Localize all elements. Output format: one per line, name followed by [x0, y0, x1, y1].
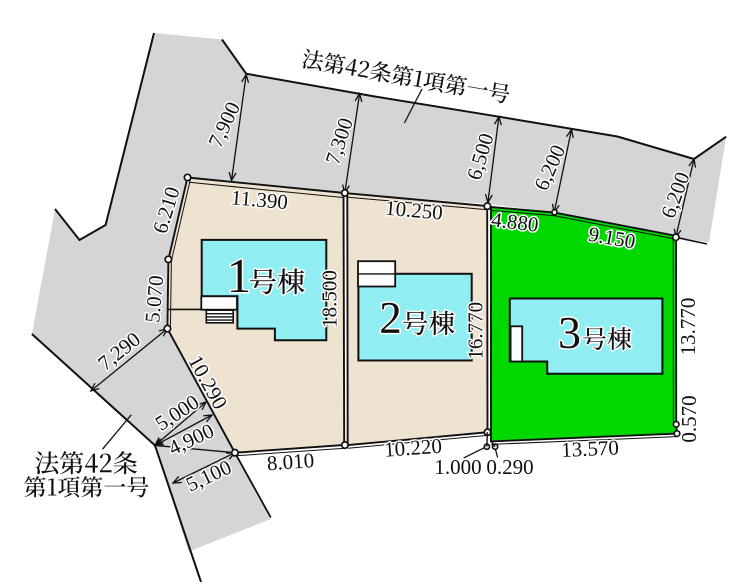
svg-text:16.770: 16.770	[464, 302, 488, 360]
svg-text:11.390: 11.390	[230, 185, 289, 214]
svg-text:18.500: 18.500	[318, 270, 342, 328]
svg-text:1: 1	[227, 248, 252, 303]
svg-text:1.000: 1.000	[434, 455, 481, 479]
svg-text:8.010: 8.010	[266, 448, 315, 475]
svg-text:10.250: 10.250	[384, 196, 444, 225]
svg-text:3: 3	[558, 307, 581, 358]
svg-text:13.570: 13.570	[561, 435, 620, 461]
svg-text:0.290: 0.290	[486, 455, 533, 479]
svg-text:13.770: 13.770	[676, 298, 700, 356]
svg-text:0.570: 0.570	[677, 395, 701, 442]
svg-text:2: 2	[379, 293, 402, 343]
svg-text:5.070: 5.070	[140, 274, 168, 323]
